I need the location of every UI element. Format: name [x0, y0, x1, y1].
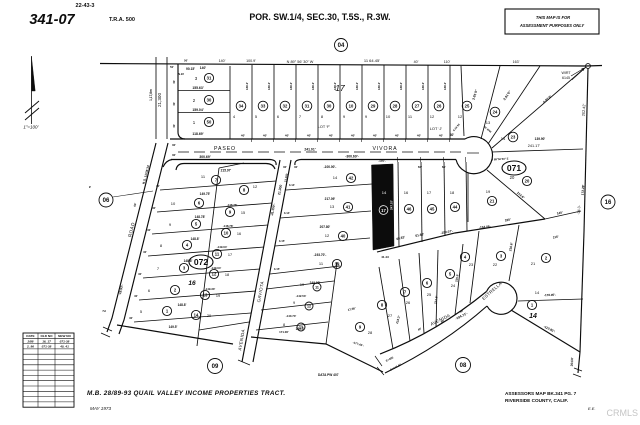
svg-text:VIVORA: VIVORA	[372, 146, 397, 152]
svg-text:12: 12	[430, 114, 435, 119]
svg-text:11: 11	[315, 285, 319, 289]
svg-text:14: 14	[529, 313, 537, 320]
svg-text:40’: 40’	[417, 134, 421, 138]
svg-text:40’: 40’	[152, 206, 156, 210]
svg-text:50: 50	[207, 120, 212, 125]
svg-text:31: 31	[207, 76, 212, 81]
svg-text:140’: 140’	[200, 66, 207, 70]
svg-text:148.2’: 148.2’	[267, 82, 271, 90]
svg-text:-140.70’: -140.70’	[286, 314, 297, 318]
svg-text:LOT ‘F’: LOT ‘F’	[318, 125, 331, 129]
svg-text:30’: 30’	[172, 153, 176, 157]
svg-text:40’: 40’	[285, 134, 289, 138]
svg-text:072: 072	[194, 257, 208, 267]
svg-text:40’: 40’	[138, 272, 142, 276]
svg-text:40, 41: 40, 41	[59, 345, 69, 349]
svg-text:14: 14	[382, 190, 387, 195]
svg-text:25: 25	[465, 104, 470, 109]
svg-text:12: 12	[325, 233, 330, 238]
svg-text:149.75’: 149.75’	[200, 192, 211, 196]
svg-text:163’: 163’	[513, 60, 520, 64]
svg-text:OLD NO: OLD NO	[40, 334, 53, 338]
svg-text:1”=100’: 1”=100’	[23, 125, 39, 130]
svg-text:NEW NO: NEW NO	[58, 334, 71, 338]
svg-text:45: 45	[430, 207, 435, 212]
svg-text:40’: 40’	[329, 134, 333, 138]
svg-text:30: 30	[207, 98, 212, 103]
svg-text:29: 29	[371, 104, 376, 109]
svg-text:15: 15	[241, 211, 245, 215]
svg-text:159.04’: 159.04’	[192, 108, 203, 112]
svg-text:16: 16	[404, 190, 409, 195]
svg-text:27: 27	[415, 104, 420, 109]
svg-text:10: 10	[349, 104, 354, 109]
svg-text:ASSESSMENT PURPOSES ONLY: ASSESSMENT PURPOSES ONLY	[519, 23, 586, 28]
svg-text:241.01’: 241.01’	[304, 147, 315, 151]
svg-text:POR. SW.1/4, SEC.30, T.5S., R.: POR. SW.1/4, SEC.30, T.5S., R.3W.	[249, 12, 390, 22]
svg-text:26: 26	[437, 104, 442, 109]
svg-text:THIS MAP IS FOR: THIS MAP IS FOR	[536, 15, 570, 20]
svg-text:110’: 110’	[444, 60, 451, 64]
svg-text:42: 42	[349, 176, 354, 181]
svg-text:-193.70’-: -193.70’-	[314, 253, 327, 257]
svg-text:31: 31	[305, 104, 310, 109]
svg-text:172.28’: 172.28’	[581, 184, 586, 195]
svg-text:90.15’: 90.15’	[186, 67, 195, 71]
svg-text:40: 40	[341, 234, 346, 239]
svg-text:9’: 9’	[89, 185, 92, 189]
svg-text:9: 9	[293, 301, 295, 305]
svg-text:33: 33	[261, 104, 266, 109]
svg-text:50’: 50’	[170, 65, 174, 69]
svg-text:12: 12	[253, 184, 258, 189]
svg-text:46: 46	[407, 207, 412, 212]
svg-text:217.09’: 217.09’	[325, 197, 336, 201]
svg-text:18: 18	[225, 273, 229, 277]
svg-text:10: 10	[300, 283, 304, 287]
svg-text:3.15’: 3.15’	[274, 267, 280, 271]
svg-text:40’: 40’	[373, 134, 377, 138]
svg-text:3.14’: 3.14’	[284, 211, 290, 215]
svg-text:14: 14	[194, 313, 199, 318]
svg-text:148.2’: 148.2’	[311, 82, 315, 90]
svg-text:148.8’: 148.8’	[184, 259, 193, 263]
svg-text:28: 28	[393, 104, 398, 109]
svg-text:-178.95’-: -178.95’-	[544, 293, 556, 297]
svg-text:DATA PW 407: DATA PW 407	[318, 373, 339, 377]
svg-text:215.97’: 215.97’	[221, 169, 232, 173]
svg-text:WIRT: WIRT	[561, 71, 571, 75]
svg-text:40’: 40’	[307, 134, 311, 138]
svg-text:341-07: 341-07	[29, 12, 75, 28]
svg-text:40’: 40’	[439, 134, 443, 138]
svg-text:20: 20	[525, 179, 530, 184]
svg-text:LOT ‘J’: LOT ‘J’	[430, 126, 443, 131]
svg-text:14: 14	[535, 290, 540, 295]
svg-text:148.2’: 148.2’	[355, 82, 359, 90]
svg-text:148.2’: 148.2’	[443, 82, 447, 90]
svg-text:300.69’: 300.69’	[199, 155, 210, 159]
svg-text:-148.78’: -148.78’	[227, 203, 238, 207]
svg-text:13: 13	[486, 120, 491, 125]
svg-text:24: 24	[451, 283, 456, 288]
svg-text:11: 11	[215, 252, 220, 257]
svg-text:148.2’: 148.2’	[289, 82, 293, 90]
svg-text:-149.04’: -149.04’	[217, 245, 228, 249]
svg-text:41.43: 41.43	[381, 255, 389, 259]
svg-text:40’: 40’	[143, 250, 147, 254]
svg-text:MAY 1973: MAY 1973	[90, 406, 111, 411]
svg-text:140’: 140’	[219, 59, 226, 63]
svg-text:247.57’: 247.57’	[389, 200, 393, 210]
svg-text:2, 96: 2, 96	[26, 345, 34, 349]
svg-text:09: 09	[212, 364, 219, 370]
svg-text:13: 13	[330, 204, 335, 209]
svg-text:23: 23	[511, 135, 516, 140]
svg-text:1,17,8m: 1,17,8m	[149, 89, 153, 101]
svg-text:7d: 7d	[102, 309, 106, 313]
svg-text:21,300: 21,300	[157, 93, 162, 107]
svg-text:39: 39	[335, 262, 340, 267]
svg-text:PASEO: PASEO	[214, 146, 236, 152]
svg-text:14: 14	[333, 175, 338, 180]
svg-text:-170’-: -170’-	[378, 159, 385, 163]
svg-text:14: 14	[501, 136, 506, 141]
svg-text:RIVERSIDE COUNTY, CALIF.: RIVERSIDE COUNTY, CALIF.	[505, 398, 568, 403]
svg-text:100.9’: 100.9’	[246, 59, 256, 63]
svg-text:12: 12	[458, 114, 463, 119]
svg-text:06: 06	[103, 198, 110, 204]
svg-text:60’: 60’	[418, 165, 422, 169]
svg-text:40’: 40’	[450, 133, 455, 137]
svg-text:19: 19	[216, 294, 220, 298]
svg-text:148.2’: 148.2’	[421, 82, 425, 90]
svg-text:-149.30’: -149.30’	[205, 287, 216, 291]
svg-text:16: 16	[237, 232, 241, 236]
svg-text:207.80’: 207.80’	[320, 225, 331, 229]
svg-text:20: 20	[207, 314, 211, 318]
svg-text:44: 44	[453, 205, 458, 210]
svg-text:DATE: DATE	[26, 334, 34, 338]
svg-text:21: 21	[531, 261, 536, 266]
svg-text:17: 17	[427, 190, 432, 195]
svg-text:19: 19	[486, 189, 491, 194]
svg-text:32: 32	[283, 104, 288, 109]
svg-text:3.15’: 3.15’	[279, 239, 285, 243]
svg-text:10: 10	[386, 114, 391, 119]
svg-text:24: 24	[493, 110, 498, 115]
svg-text:17: 17	[228, 253, 232, 257]
svg-text:148.8’: 148.8’	[191, 237, 200, 241]
svg-text:CRMLS: CRMLS	[606, 408, 638, 418]
svg-text:E.E.: E.E.	[588, 406, 596, 411]
svg-text:40’: 40’	[395, 134, 399, 138]
svg-text:27: 27	[388, 313, 393, 318]
svg-text:149.5’: 149.5’	[169, 325, 178, 329]
svg-text:40’: 40’	[129, 316, 133, 320]
svg-text:241.17’: 241.17’	[528, 144, 541, 148]
svg-text:40’: 40’	[414, 60, 419, 64]
svg-text:249.00’: 249.00’	[310, 281, 321, 285]
svg-text:26: 26	[406, 300, 411, 305]
svg-text:10: 10	[224, 231, 229, 236]
svg-text:16: 16	[188, 280, 196, 287]
svg-text:61’: 61’	[442, 165, 446, 169]
svg-text:11 64.45’: 11 64.45’	[364, 58, 380, 63]
svg-text:23: 23	[469, 262, 474, 267]
svg-text:34: 34	[239, 104, 244, 109]
svg-text:12: 12	[307, 304, 311, 308]
svg-text:-300.69’-: -300.69’-	[345, 154, 359, 158]
svg-text:30’: 30’	[172, 143, 176, 147]
svg-text:-149.04’: -149.04’	[211, 266, 222, 270]
svg-text:148.2’: 148.2’	[399, 82, 403, 90]
svg-text:17: 17	[335, 83, 345, 93]
svg-text:17: 17	[381, 208, 386, 213]
svg-text:25: 25	[427, 292, 432, 297]
svg-text:148.78’: 148.78’	[195, 215, 206, 219]
svg-text:3.14’: 3.14’	[289, 183, 295, 187]
svg-text:N 89° 56’ 30” W: N 89° 56’ 30” W	[287, 60, 314, 64]
svg-text:28: 28	[368, 330, 373, 335]
svg-text:149.5’: 149.5’	[296, 327, 305, 331]
svg-text:20: 20	[510, 175, 515, 180]
svg-text:40’: 40’	[156, 184, 160, 188]
svg-text:10: 10	[171, 201, 176, 206]
svg-text:M.B. 28/89-93 QUAIL VALLEY: M.B. 28/89-93 QUAIL VALLEY INCOME PROPER…	[87, 390, 286, 397]
svg-text:155.63’: 155.63’	[192, 86, 203, 90]
svg-text:-142.53’: -142.53’	[296, 294, 307, 298]
svg-text:22-43-3: 22-43-3	[76, 3, 95, 9]
svg-text:40’: 40’	[134, 294, 138, 298]
svg-text:-100.00’-: -100.00’-	[324, 165, 337, 169]
svg-text:30: 30	[327, 104, 332, 109]
svg-text:6145: 6145	[562, 76, 570, 80]
svg-text:40’: 40’	[263, 134, 267, 138]
svg-text:04: 04	[338, 43, 345, 49]
svg-text:139.90’: 139.90’	[535, 137, 546, 141]
svg-text:30’: 30’	[283, 165, 287, 169]
svg-text:12: 12	[212, 272, 217, 277]
svg-text:41: 41	[346, 205, 351, 210]
svg-text:21: 21	[490, 199, 495, 204]
svg-text:8: 8	[283, 323, 285, 327]
svg-text:40’: 40’	[241, 134, 245, 138]
svg-text:40’: 40’	[351, 134, 355, 138]
svg-text:30’: 30’	[294, 165, 298, 169]
svg-text:22: 22	[493, 262, 498, 267]
svg-text:T.R.A. 500: T.R.A. 500	[109, 17, 135, 23]
svg-text:20137: 20137	[570, 357, 575, 366]
svg-text:18: 18	[450, 190, 455, 195]
svg-text:118.69’: 118.69’	[192, 132, 203, 136]
svg-text:148.2’: 148.2’	[245, 82, 249, 90]
svg-text:071-38: 071-38	[60, 339, 70, 343]
svg-text:N.22: N.22	[178, 72, 184, 76]
svg-text:50’: 50’	[184, 59, 188, 63]
svg-text:148.8’: 148.8’	[178, 303, 187, 307]
svg-text:071-38: 071-38	[42, 345, 52, 349]
svg-text:148.2’: 148.2’	[377, 82, 381, 90]
svg-text:16: 16	[605, 200, 612, 206]
svg-text:13: 13	[203, 293, 208, 298]
svg-text:08: 08	[460, 363, 467, 369]
svg-text:-148.78’: -148.78’	[223, 224, 234, 228]
svg-text:ASSESSORS MAP BK.341 PG. 7: ASSESSORS MAP BK.341 PG. 7	[505, 391, 577, 396]
svg-text:2/88: 2/88	[26, 339, 33, 343]
svg-text:171.06’: 171.06’	[279, 330, 289, 334]
svg-text:16, 17: 16, 17	[42, 339, 51, 343]
svg-text:071: 071	[507, 163, 521, 173]
svg-text:40’: 40’	[147, 228, 151, 232]
